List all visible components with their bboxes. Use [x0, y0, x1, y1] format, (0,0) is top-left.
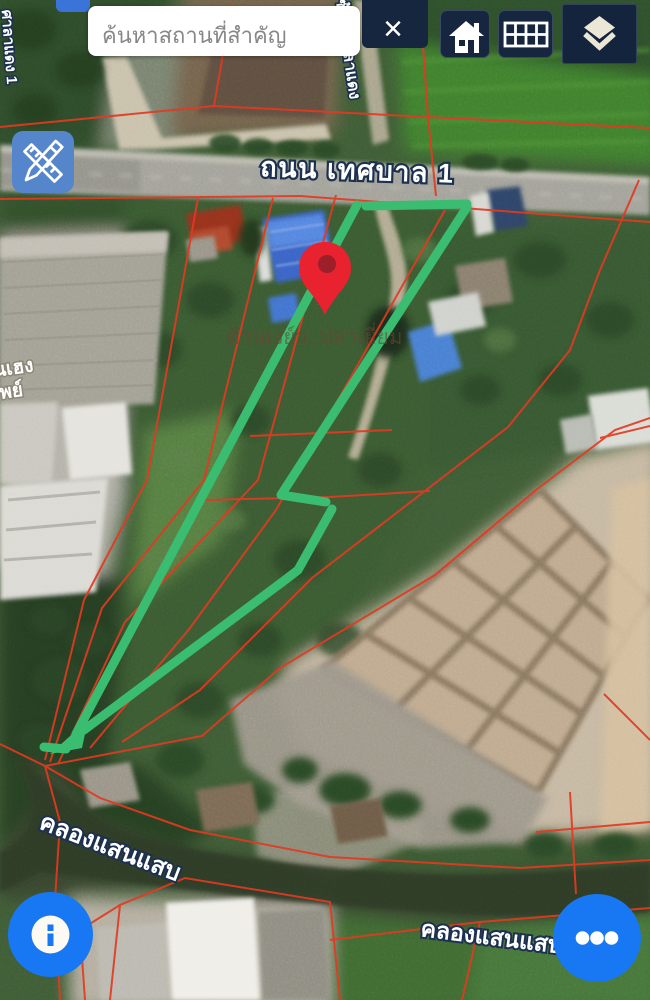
svg-text:ต้านเงย์ว..ปลาเยี่ยม: ต้านเงย์ว..ปลาเยี่ยม	[226, 322, 403, 349]
